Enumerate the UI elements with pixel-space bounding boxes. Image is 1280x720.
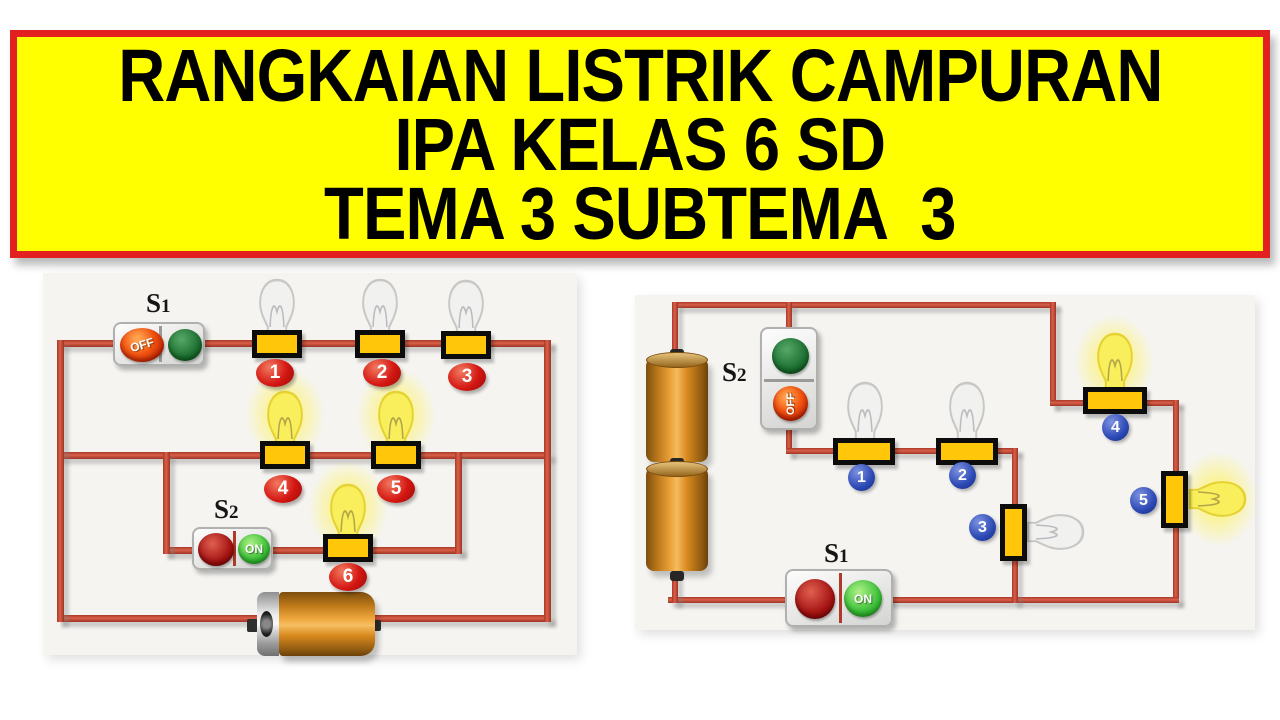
battery <box>247 592 381 658</box>
lamp-holder-3 <box>441 331 491 359</box>
bulb-6 <box>325 482 371 542</box>
lamp-holder-4 <box>1083 387 1147 414</box>
battery-body <box>279 592 375 656</box>
switch-divider <box>764 379 814 382</box>
wire-segment <box>163 452 170 554</box>
bulb-number-badge: 5 <box>377 475 415 503</box>
battery-cell-2 <box>646 458 708 580</box>
battery-terminal <box>670 571 684 581</box>
wire-segment <box>544 340 551 622</box>
bulb-number-badge: 3 <box>448 363 486 391</box>
wire-segment <box>674 302 1056 308</box>
bulb-number-badge: 3 <box>969 514 996 541</box>
s1-red-button[interactable] <box>795 579 835 619</box>
bulb-4 <box>1092 331 1138 391</box>
s1-label: S1 <box>146 288 171 319</box>
s2-red-button[interactable] <box>198 533 234 566</box>
bulb-number-badge: 2 <box>363 359 401 387</box>
battery-cap-hole <box>260 611 273 637</box>
bulb-4 <box>262 389 308 449</box>
title-line-1: RANGKAIAN LISTRIK CAMPURAN <box>118 41 1162 110</box>
bulb-5 <box>373 389 419 449</box>
switch-s2: OFF <box>760 327 818 430</box>
lamp-holder-1 <box>833 438 895 465</box>
bulb-1 <box>254 277 300 337</box>
s2-off-button[interactable]: OFF <box>773 386 808 421</box>
lamp-holder-5 <box>1161 471 1188 528</box>
title-line-3: TEMA 3 SUBTEMA 3 <box>324 179 955 248</box>
lamp-holder-2 <box>355 330 405 358</box>
battery-top <box>646 461 708 477</box>
battery-top <box>646 352 708 368</box>
switch-s1: OFF <box>113 322 205 366</box>
battery-body <box>646 358 708 462</box>
switch-divider <box>839 573 842 623</box>
lamp-holder-3 <box>1000 504 1027 561</box>
wire-segment <box>1050 302 1056 406</box>
lamp-holder-6 <box>323 534 373 562</box>
bulb-3 <box>1026 509 1086 555</box>
wire-segment <box>455 452 462 554</box>
wire-segment <box>668 597 1179 603</box>
bulb-number-badge: 4 <box>1102 414 1129 441</box>
title-banner: RANGKAIAN LISTRIK CAMPURAN IPA KELAS 6 S… <box>10 30 1270 258</box>
bulb-2 <box>357 277 403 337</box>
bulb-1 <box>842 380 888 442</box>
battery-body <box>646 467 708 571</box>
bulb-number-badge: 4 <box>264 475 302 503</box>
bulb-2 <box>944 380 990 442</box>
wire-segment <box>57 340 64 622</box>
lamp-holder-5 <box>371 441 421 469</box>
title-line-2: IPA KELAS 6 SD <box>395 110 886 179</box>
switch-s1: ON <box>785 569 893 627</box>
bulb-number-badge: 5 <box>1130 487 1157 514</box>
s2-label: S2 <box>214 494 239 525</box>
switch-s2: ON <box>192 527 273 570</box>
s1-green-button[interactable] <box>168 329 202 361</box>
s1-label: S1 <box>824 538 849 569</box>
bulb-number-badge: 1 <box>256 359 294 387</box>
s2-label: S2 <box>722 357 747 388</box>
bulb-number-badge: 6 <box>329 563 367 591</box>
s2-green-button[interactable] <box>772 338 809 374</box>
lamp-holder-2 <box>936 438 998 465</box>
battery-cell-1 <box>646 349 708 462</box>
s1-off-button[interactable]: OFF <box>120 328 164 362</box>
bulb-number-badge: 2 <box>949 462 976 489</box>
lamp-holder-4 <box>260 441 310 469</box>
bulb-5 <box>1188 476 1248 522</box>
s1-on-button[interactable]: ON <box>844 580 882 617</box>
s2-on-button[interactable]: ON <box>238 534 270 564</box>
bulb-3 <box>443 278 489 338</box>
lamp-holder-1 <box>252 330 302 358</box>
slide: RANGKAIAN LISTRIK CAMPURAN IPA KELAS 6 S… <box>0 0 1280 720</box>
bulb-number-badge: 1 <box>848 464 875 491</box>
